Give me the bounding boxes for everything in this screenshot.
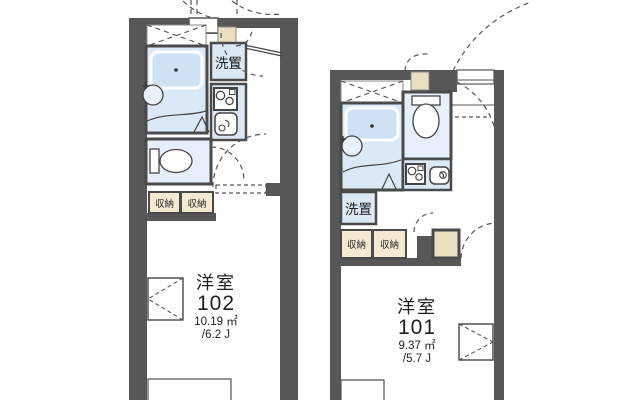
bathtub-drain-101 bbox=[370, 124, 374, 128]
room-tatami-102: /6.2 J bbox=[160, 329, 272, 341]
bathtub-101 bbox=[346, 108, 398, 140]
room-number-101: 101 bbox=[361, 317, 473, 340]
room-info-102: 洋室 102 10.19 ㎡ /6.2 J bbox=[160, 274, 272, 341]
shoe-door-arc-101 bbox=[414, 213, 433, 232]
room-type-102: 洋室 bbox=[160, 274, 272, 293]
toilet-door-arc-102 bbox=[211, 147, 244, 180]
toilet-bowl-101 bbox=[413, 104, 439, 138]
unit-101-genkan bbox=[411, 72, 429, 90]
room-info-101: 洋室 101 9.37 ㎡ /5.7 J bbox=[361, 298, 473, 365]
room-tatami-101: /5.7 J bbox=[361, 353, 473, 365]
washer-label-101: 洗置 bbox=[341, 192, 376, 224]
room-door-arc-101 bbox=[461, 223, 496, 258]
washer-label-102: 洗置 bbox=[211, 43, 246, 80]
toilet-bowl-102 bbox=[160, 150, 192, 173]
floor-plan: 洗置 収納 収納 洋室 102 10.19 ㎡ /6.2 J 洗置 収納 収納 … bbox=[0, 0, 640, 400]
room-type-101: 洋室 bbox=[361, 298, 473, 317]
room-door-arc-102 bbox=[213, 134, 266, 187]
entry-door-arc-101 bbox=[457, 82, 497, 155]
bathtub-drain-102 bbox=[174, 68, 178, 72]
room-number-102: 102 bbox=[160, 293, 272, 316]
storage-label-101-b: 収納 bbox=[373, 230, 406, 258]
room-door-102 bbox=[216, 185, 266, 193]
unit-101-entry-alcove bbox=[457, 70, 494, 84]
room-area-101: 9.37 ㎡ bbox=[361, 340, 473, 352]
sink-icon-102 bbox=[215, 113, 237, 135]
room-area-102: 10.19 ㎡ bbox=[160, 316, 272, 328]
storage-label-101-a: 収納 bbox=[341, 230, 372, 258]
shoe-cabinet-101 bbox=[433, 230, 459, 258]
floor-plan-drawing bbox=[0, 0, 640, 400]
bed-outline-101 bbox=[341, 380, 384, 400]
bed-outline-102 bbox=[148, 379, 231, 400]
storage-label-102-b: 収納 bbox=[181, 192, 213, 213]
storage-label-102-a: 収納 bbox=[149, 192, 180, 213]
toilet-tank-102 bbox=[150, 149, 159, 173]
